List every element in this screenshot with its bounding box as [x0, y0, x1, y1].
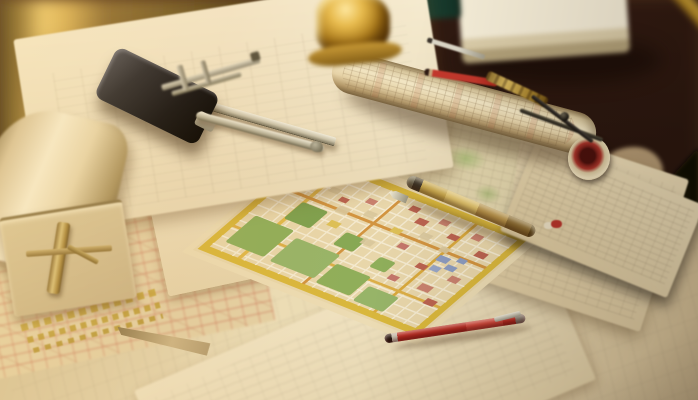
- brass-ornament: [308, 0, 402, 70]
- red-wax: [551, 220, 562, 228]
- notepad: [0, 199, 137, 317]
- red-wax-crumb: [544, 220, 562, 231]
- divider-compass: [520, 90, 612, 144]
- desk-scene: [0, 0, 698, 400]
- divider-hinge-knob: [560, 112, 569, 121]
- caliper-main-bar: [161, 57, 261, 91]
